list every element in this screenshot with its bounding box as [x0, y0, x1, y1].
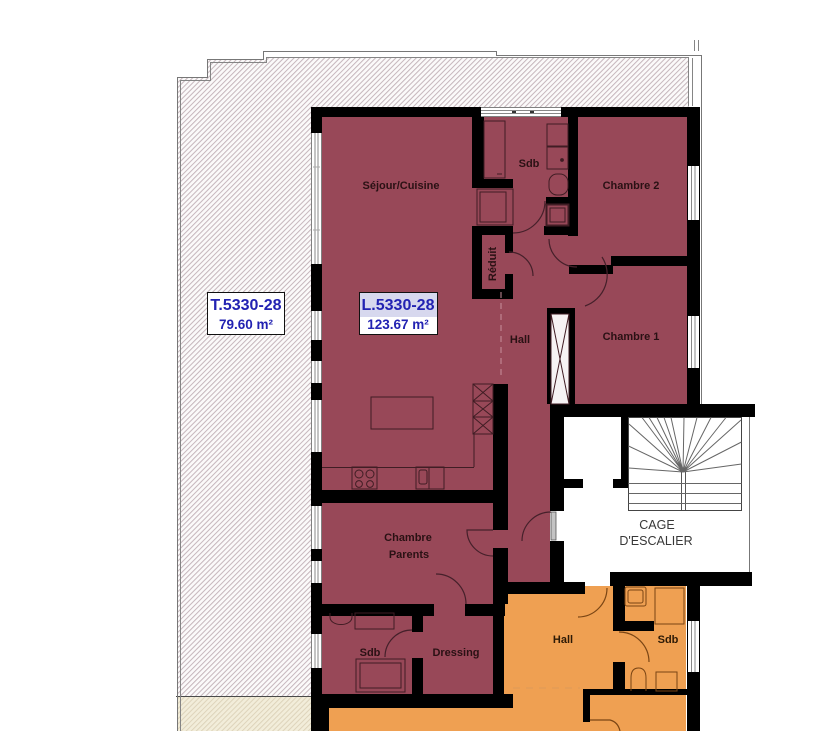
svg-text:Chambre 2: Chambre 2 [603, 180, 660, 192]
svg-text:L.5330-28: L.5330-28 [362, 297, 435, 314]
svg-text:Dressing: Dressing [432, 647, 479, 659]
svg-text:Sdb: Sdb [360, 647, 381, 659]
svg-text:Sdb: Sdb [519, 158, 540, 170]
svg-text:Parents: Parents [389, 549, 429, 561]
svg-text:Sdb: Sdb [658, 634, 679, 646]
svg-text:123.67 m²: 123.67 m² [367, 317, 429, 332]
svg-text:Séjour/Cuisine: Séjour/Cuisine [362, 180, 439, 192]
svg-text:79.60 m²: 79.60 m² [219, 317, 274, 332]
svg-text:T.5330-28: T.5330-28 [210, 297, 281, 314]
svg-text:D'ESCALIER: D'ESCALIER [619, 534, 692, 548]
svg-text:Hall: Hall [553, 634, 573, 646]
svg-text:Hall: Hall [510, 334, 530, 346]
svg-text:CAGE: CAGE [639, 518, 674, 532]
svg-text:Réduit: Réduit [487, 247, 499, 282]
svg-text:Chambre: Chambre [384, 532, 432, 544]
svg-text:Chambre 1: Chambre 1 [603, 331, 660, 343]
